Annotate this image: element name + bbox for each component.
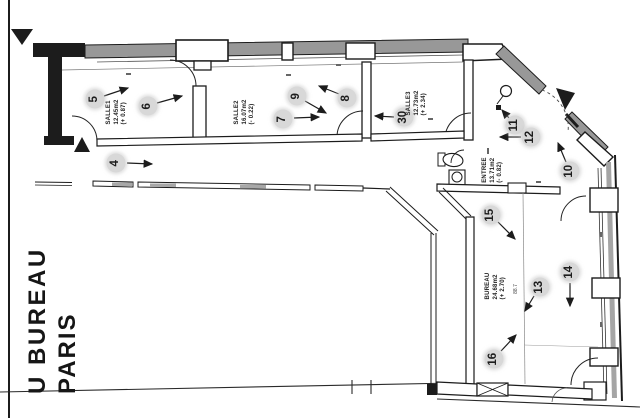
entree-bottom-wall (437, 183, 586, 221)
photo-marker-7: 7 (274, 110, 293, 129)
room-level: (- 0.22) (249, 99, 257, 124)
photo-marker-label: 15 (485, 209, 497, 222)
photo-marker-8: 8 (338, 89, 357, 108)
room-name: SALLE3 (406, 90, 414, 115)
photo-marker-label: 4 (110, 160, 122, 166)
photo-marker-label: 5 (89, 96, 101, 102)
title-block-line1: U BUREAU (24, 247, 52, 394)
photo-marker-label: 13 (534, 281, 546, 294)
top-facade-wall (62, 39, 509, 70)
corridor-wall (35, 181, 438, 384)
room-area: 16.07m2 (241, 99, 249, 124)
photo-marker-label: 12 (525, 131, 537, 144)
wc-area (438, 150, 465, 185)
photo-marker-4: 4 (107, 154, 126, 173)
room-name: ENTREE (482, 157, 490, 183)
photo-marker-14: 14 (561, 263, 580, 282)
room-label-salle3: SALLE312.73m2(+ 2.34) (406, 90, 429, 115)
photo-marker-label: 14 (564, 266, 576, 279)
right-facade-wall (584, 155, 622, 401)
room-name: SALLE1 (106, 99, 114, 124)
room-name: SALLE2 (234, 99, 242, 124)
photo-marker-5: 5 (86, 90, 105, 109)
room-area: 24.68m2 (492, 273, 500, 300)
diagonal-facade-wall (496, 46, 613, 166)
floor-plan-scan: 4567893011121015131416SALLE112.45m2(+ 0.… (0, 0, 640, 418)
photo-marker-9: 9 (288, 87, 307, 106)
corridor-triangle-icon (74, 137, 90, 152)
room-area: 12.73m2 (413, 90, 421, 115)
ceiling-beam-line (523, 192, 525, 384)
room-level: (+ 0.87) (121, 99, 129, 124)
photo-marker-13: 13 (531, 278, 550, 297)
door-arc-salle2-salle3 (337, 111, 363, 137)
fireplace (477, 383, 508, 396)
entree-symbols (496, 86, 512, 111)
photo-marker-12: 12 (522, 128, 541, 147)
room-level: (- 0.82) (497, 157, 505, 183)
room-level: (+ 2.70) (500, 273, 508, 300)
photo-marker-label: 11 (509, 119, 521, 131)
room-level: (+ 2.34) (421, 90, 429, 115)
photo-marker-label: 8 (341, 95, 353, 101)
room-name: BUREAU (485, 273, 493, 300)
photo-marker-label: 6 (142, 103, 154, 109)
title-block-line2: PARIS (54, 312, 82, 394)
room-label-salle1: SALLE112.45m2(+ 0.87) (106, 99, 129, 124)
floor-plan-drawing (0, 0, 640, 418)
party-wall (33, 43, 85, 145)
photo-marker-label: 9 (291, 93, 303, 99)
entry-triangle-icon (556, 88, 575, 110)
light-fixture-icon (501, 86, 512, 97)
photo-marker-6: 6 (139, 97, 158, 116)
window-sill (590, 348, 618, 366)
door-arc-salle1-salle2 (170, 60, 196, 86)
room-area: 12.45m2 (113, 99, 121, 124)
room-label-bureau: BUREAU24.68m2(+ 2.70) (485, 273, 508, 300)
door-arc-entree-bureau (561, 196, 586, 221)
photo-marker-10: 10 (561, 162, 580, 181)
dimension-note: 88.7 (513, 284, 519, 294)
window-sill (592, 278, 620, 298)
north-triangle-icon (11, 29, 33, 45)
bureau-walls (427, 188, 598, 402)
photo-marker-15: 15 (482, 206, 501, 225)
room-area: 13.71m2 (489, 157, 497, 183)
photo-marker-label: 7 (277, 116, 289, 122)
room-label-entree: ENTREE13.71m2(- 0.82) (482, 157, 505, 183)
photo-marker-label: 16 (488, 353, 500, 366)
door-arc-salle1 (72, 116, 97, 141)
photo-marker-label: 10 (564, 165, 576, 178)
switch-icon (496, 105, 501, 110)
photo-marker-16: 16 (485, 350, 504, 369)
window-sill (590, 188, 618, 212)
room-label-salle2: SALLE216.07m2(- 0.22) (234, 99, 257, 124)
